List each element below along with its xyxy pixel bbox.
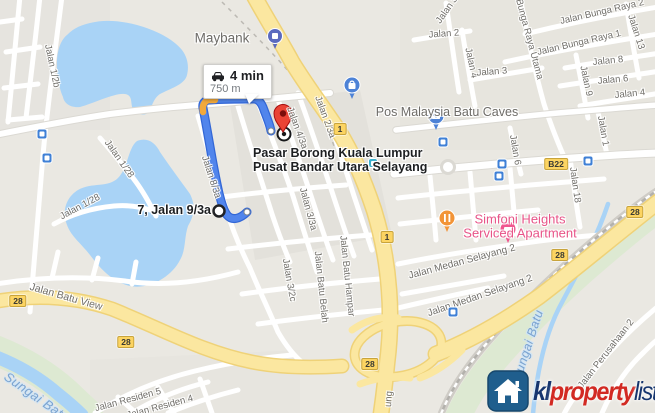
route-shield: 28 [626,206,643,218]
car-icon [210,70,226,82]
origin-address-label: 7, Jalan 9/3a [137,203,211,217]
route-shield: 28 [9,295,26,307]
route-shield: 28 [117,336,134,348]
destination-name-line2: Pusat Bandar Utara Selayang [253,160,427,174]
route-shield: 28 [361,358,378,370]
bus-stop-icon[interactable] [439,138,448,147]
bus-stop-icon[interactable] [498,160,507,169]
bus-stop-icon[interactable] [38,130,47,139]
watermark-list: list [634,376,655,406]
route-shield: 28 [551,249,568,261]
route-end-dot [268,128,274,134]
map-graphics [0,0,655,413]
klpropertylist-watermark: klpropertylist [487,370,655,412]
map-canvas[interactable]: Jalan 1/2bJalan 1/28Jalan 1/28Jalan 8/3a… [0,0,655,413]
destination-name-line1: Pasar Borong Kuala Lumpur [253,146,422,160]
origin-circle[interactable] [214,206,225,217]
house-icon [487,370,529,412]
route-shield: B22 [544,158,568,170]
route-start-dot [244,209,250,215]
bubble-tail [245,94,259,104]
bus-stop-icon[interactable] [449,308,458,317]
route-shield: 1 [381,231,394,243]
route-shield: 1 [334,123,347,135]
bus-stop-icon[interactable] [584,157,593,166]
roundabout [442,161,455,174]
bus-stop-icon[interactable] [495,172,504,181]
watermark-property: property [550,376,634,406]
bus-stop-icon[interactable] [43,154,52,163]
route-info-bubble[interactable]: 4 min 750 m [203,64,272,99]
route-duration: 4 min [230,68,264,83]
watermark-kl: kl [533,376,550,406]
